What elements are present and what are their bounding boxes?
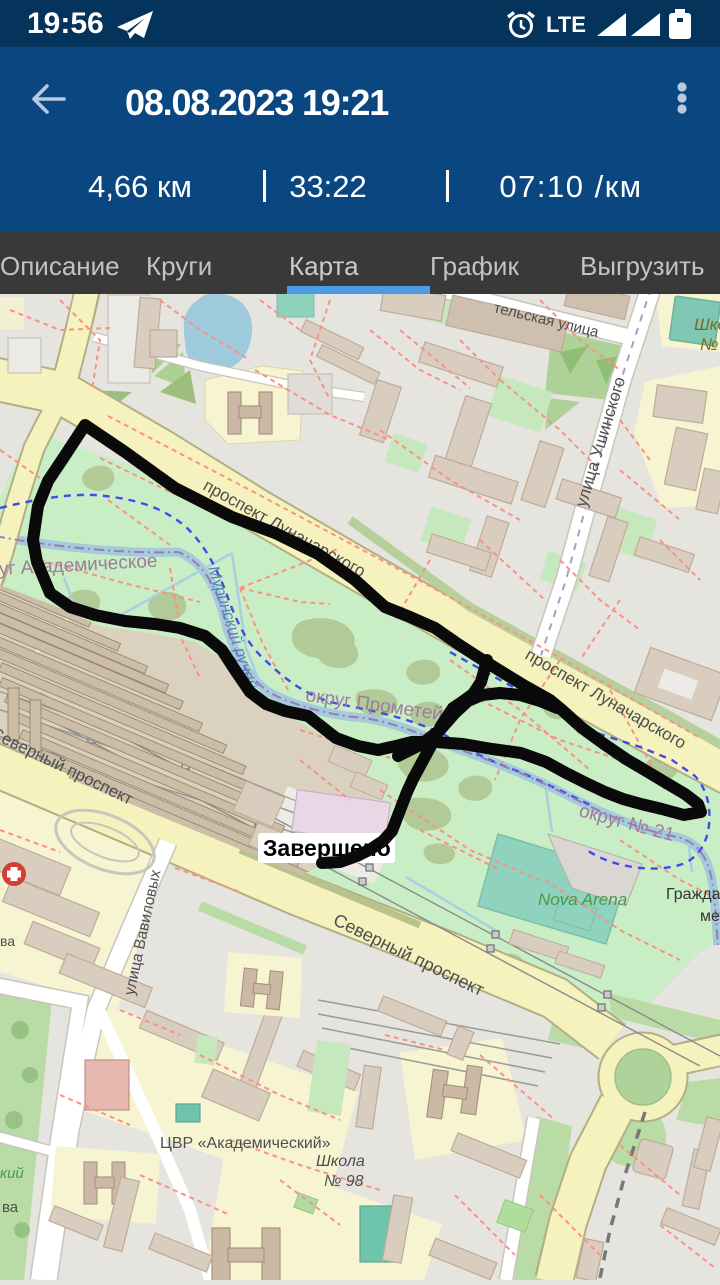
svg-text:ва: ва: [0, 933, 15, 949]
svg-text:кий: кий: [0, 1165, 24, 1182]
svg-text:ЦВР «Академический»: ЦВР «Академический»: [160, 1135, 331, 1152]
svg-text:№ 98: № 98: [324, 1173, 364, 1190]
svg-text:ва: ва: [2, 1199, 19, 1216]
svg-text:Школа: Школа: [316, 1153, 365, 1170]
svg-text:№ 15: № 15: [700, 335, 720, 354]
svg-text:Nova Arena: Nova Arena: [538, 890, 627, 909]
svg-text:Гражданс: Гражданс: [666, 886, 720, 903]
svg-text:мет: мет: [700, 908, 720, 925]
svg-text:Школа: Школа: [694, 315, 720, 334]
